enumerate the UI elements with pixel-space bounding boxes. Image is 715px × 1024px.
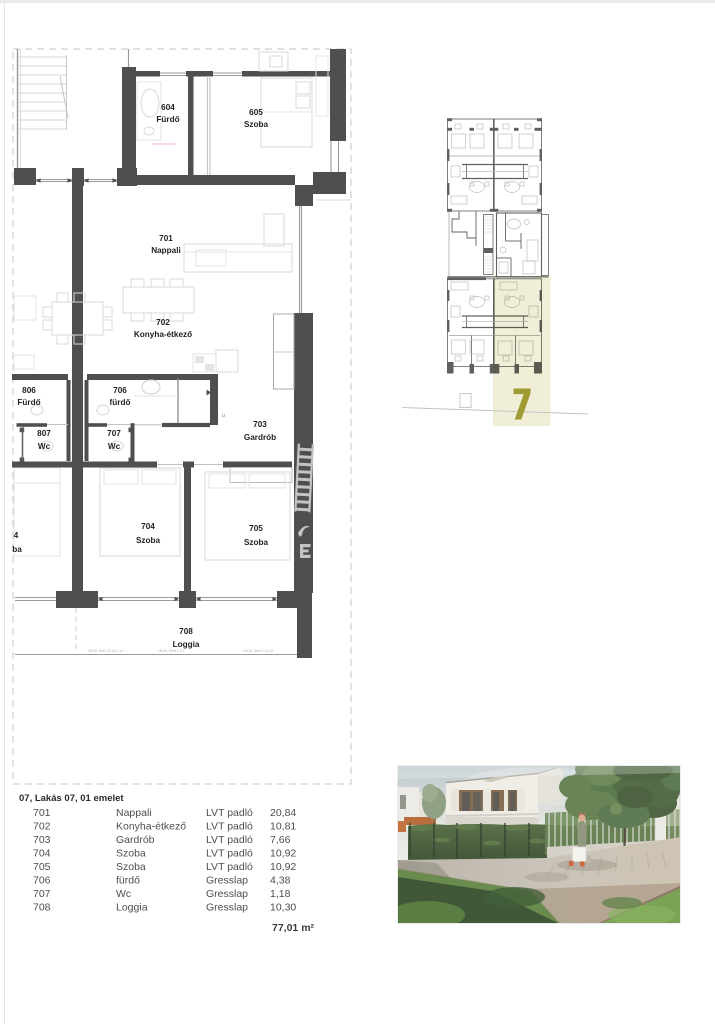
svg-text:fürdő: fürdő [110,398,131,407]
svg-text:10,30: 10,30 [270,902,296,914]
svg-text:703: 703 [253,420,267,429]
svg-text:605: 605 [249,108,263,117]
svg-text:Konyha-étkező: Konyha-étkező [116,821,186,833]
svg-text:Szoba: Szoba [136,536,161,545]
svg-text:4,38: 4,38 [270,875,291,887]
svg-text:u: u [222,413,225,419]
svg-text:701: 701 [33,807,51,819]
svg-text:Szoba: Szoba [116,848,146,860]
svg-text:1,18: 1,18 [270,888,291,900]
svg-text:702: 702 [156,318,170,327]
svg-text:Gresslap: Gresslap [206,902,248,914]
svg-text:Nappali: Nappali [116,807,152,819]
svg-text:705: 705 [249,524,263,533]
svg-text:fürdő: fürdő [116,875,140,887]
svg-text:Konyha-étkező: Konyha-étkező [134,330,192,339]
svg-text:707: 707 [33,888,51,900]
svg-text:LVT padló: LVT padló [206,834,253,846]
svg-text:Fürdő: Fürdő [156,115,179,124]
svg-text:708: 708 [179,627,193,636]
svg-text:Gresslap: Gresslap [206,875,248,887]
svg-text:704: 704 [33,848,51,860]
svg-text:701: 701 [159,234,173,243]
svg-text:7,66: 7,66 [270,834,291,846]
svg-text:706: 706 [33,875,51,887]
svg-text:07, Lakás 07, 01 emelet: 07, Lakás 07, 01 emelet [19,793,124,804]
svg-text:1M DL DM4 2 10: 1M DL DM4 2 10 [158,649,184,653]
svg-text:LVT padló: LVT padló [206,821,253,833]
svg-text:Szoba: Szoba [244,120,269,129]
svg-text:Gardrób: Gardrób [244,433,276,442]
svg-text:Wc: Wc [116,888,131,900]
svg-text:Szoba: Szoba [244,538,269,547]
svg-text:704: 704 [141,522,155,531]
svg-text:ba: ba [12,545,22,554]
svg-text:702: 702 [33,821,51,833]
svg-text:10,81: 10,81 [270,821,296,833]
svg-text:Nappali: Nappali [151,246,181,255]
svg-text:705: 705 [33,861,51,873]
svg-text:1M DL DM4 2 10 10: 1M DL DM4 2 10 10 [243,649,273,653]
svg-text:706: 706 [113,386,127,395]
svg-text:LVT padló: LVT padló [206,861,253,873]
svg-text:Wc: Wc [108,442,121,451]
svg-text:708: 708 [33,902,51,914]
svg-text:77,01 m²: 77,01 m² [272,922,315,934]
svg-text:807: 807 [37,429,51,438]
svg-text:20,84: 20,84 [270,807,296,819]
svg-text:4: 4 [14,531,19,540]
svg-text:Loggia: Loggia [173,640,200,649]
svg-text:Wc: Wc [38,442,51,451]
svg-text:10,92: 10,92 [270,848,296,860]
svg-text:Loggia: Loggia [116,902,148,914]
svg-text:1M DL DM2 03 43 2 10: 1M DL DM2 03 43 2 10 [88,649,123,653]
svg-text:604: 604 [161,103,175,112]
svg-text:Gresslap: Gresslap [206,888,248,900]
svg-text:Gardrób: Gardrób [116,834,155,846]
svg-text:LVT padló: LVT padló [206,848,253,860]
svg-text:Szoba: Szoba [116,861,146,873]
svg-text:703: 703 [33,834,51,846]
svg-text:707: 707 [107,429,121,438]
svg-text:Fürdő: Fürdő [17,398,40,407]
svg-text:LVT padló: LVT padló [206,807,253,819]
svg-text:806: 806 [22,386,36,395]
svg-text:10,92: 10,92 [270,861,296,873]
